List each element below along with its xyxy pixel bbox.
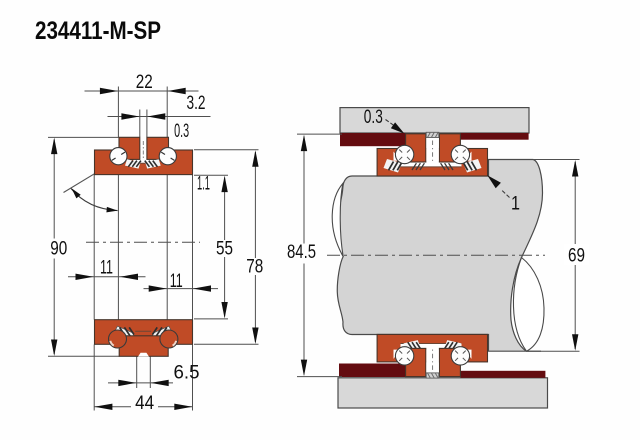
svg-text:84.5: 84.5 bbox=[287, 242, 316, 263]
svg-text:55: 55 bbox=[216, 239, 233, 260]
svg-text:1: 1 bbox=[511, 194, 520, 215]
svg-text:90: 90 bbox=[50, 239, 67, 260]
svg-text:1.1: 1.1 bbox=[197, 174, 210, 195]
svg-text:22: 22 bbox=[136, 72, 153, 93]
svg-text:6.5: 6.5 bbox=[174, 363, 200, 384]
svg-text:11: 11 bbox=[100, 258, 113, 279]
svg-text:0.3: 0.3 bbox=[174, 121, 189, 142]
svg-text:11: 11 bbox=[170, 271, 183, 292]
svg-text:3.2: 3.2 bbox=[187, 93, 206, 114]
svg-text:44: 44 bbox=[135, 393, 154, 414]
svg-text:78: 78 bbox=[246, 257, 263, 278]
svg-text:234411-M-SP: 234411-M-SP bbox=[35, 17, 161, 45]
svg-text:69: 69 bbox=[568, 246, 585, 267]
svg-text:0.3: 0.3 bbox=[364, 107, 383, 128]
